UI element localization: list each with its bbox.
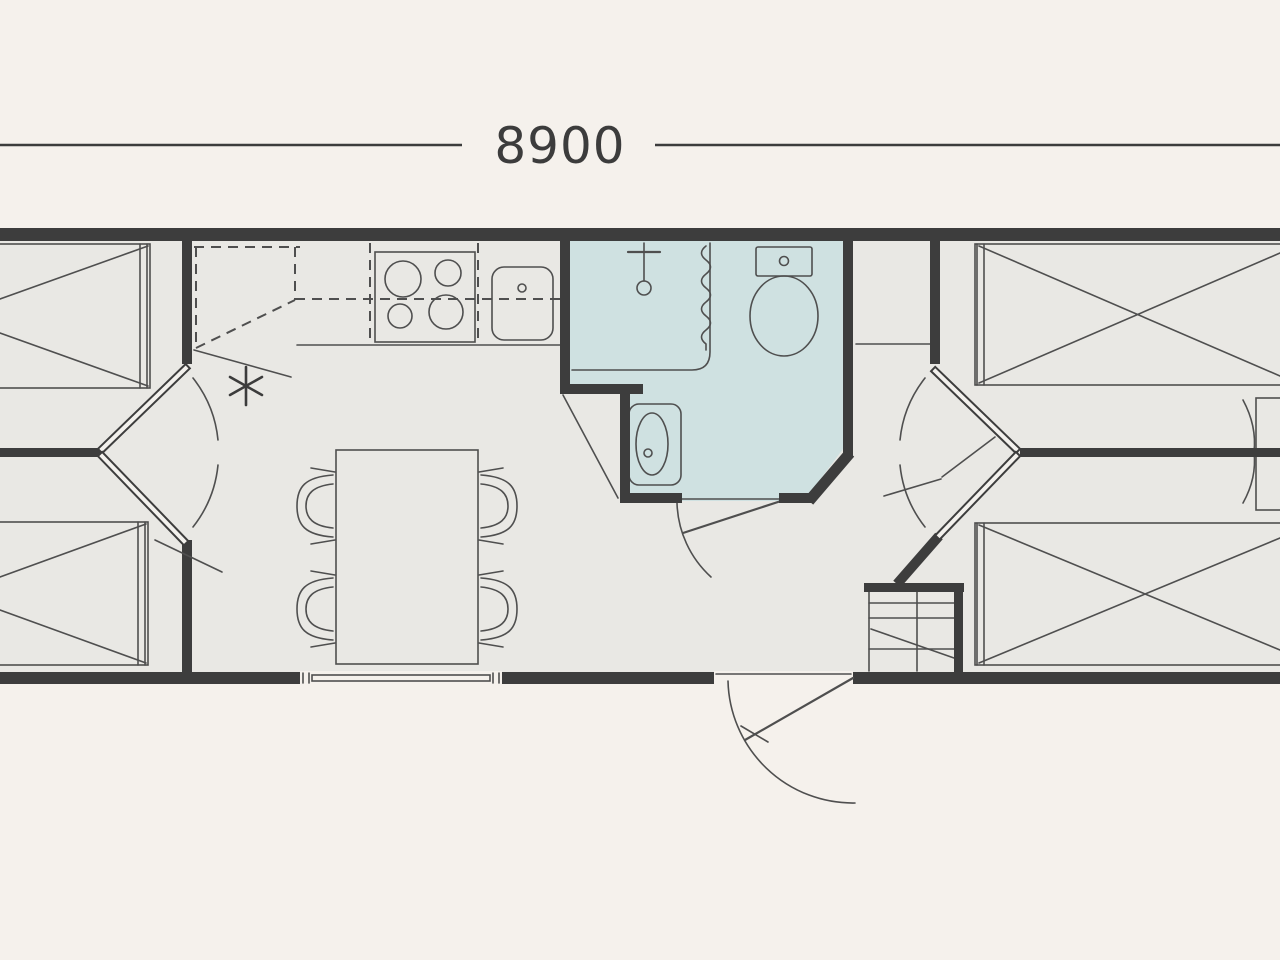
entrance-opening <box>714 671 853 685</box>
dining-table <box>336 450 478 664</box>
entrance-door-leaf <box>745 678 853 740</box>
wall-left-bedroom-lower <box>182 540 192 672</box>
entrance-door-arc <box>728 681 855 803</box>
wall-bunk-top <box>864 583 964 592</box>
entrance-door <box>714 671 855 803</box>
window-opening <box>300 671 502 685</box>
window <box>300 671 502 685</box>
wall-basin-column <box>620 390 630 503</box>
dimension: 8900 <box>0 117 1280 175</box>
wall-bathroom-shower <box>560 384 643 394</box>
exterior-wall-bottom <box>0 672 300 684</box>
wall-bathroom-left <box>560 240 570 394</box>
wall-left-bedroom-upper <box>182 240 192 364</box>
wall-bathroom-right <box>843 240 853 456</box>
wall-bathroom-bottom <box>620 493 682 503</box>
dimension-label: 8900 <box>494 117 625 175</box>
exterior-wall-top <box>0 228 1280 241</box>
wall-left-middle <box>0 448 100 457</box>
floor-plan: 8900 <box>0 0 1280 960</box>
wall-right-middle <box>1020 448 1280 457</box>
wall-bunk-right <box>954 592 963 672</box>
exterior-wall-bottom <box>502 672 714 684</box>
wall-right-bedroom-upper <box>930 240 940 364</box>
exterior-wall-bottom <box>853 672 1280 684</box>
